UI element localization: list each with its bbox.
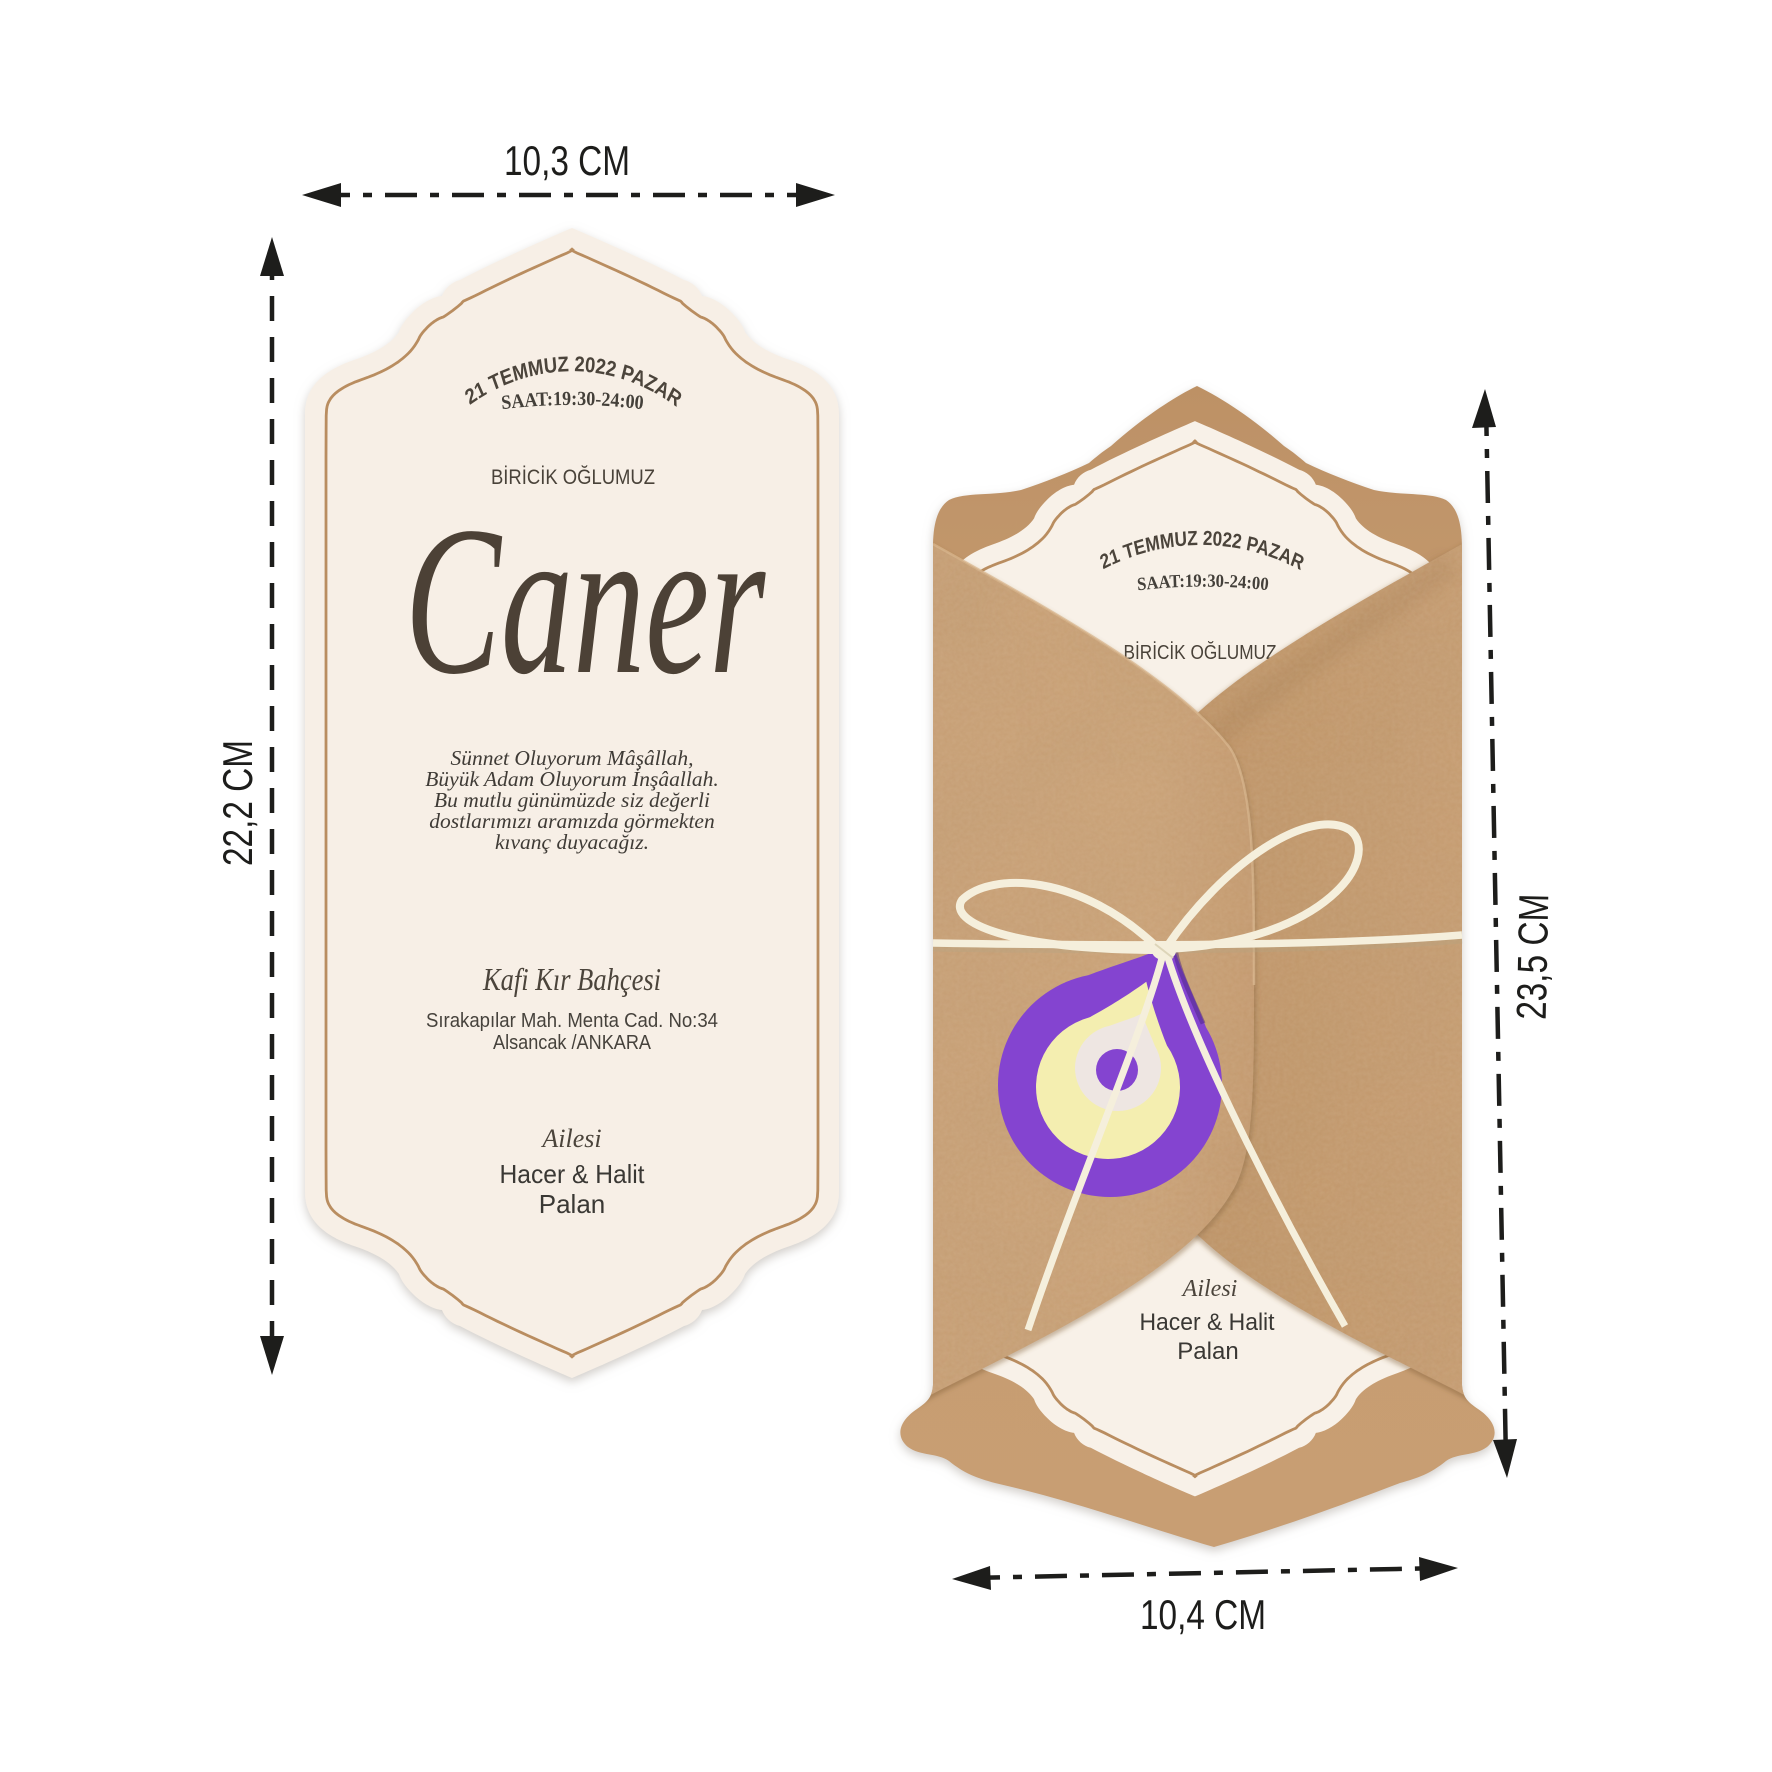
svg-text:Sırakapılar Mah. Menta Cad. No: Sırakapılar Mah. Menta Cad. No:34 — [426, 1010, 718, 1032]
svg-text:Ailesi: Ailesi — [1181, 1276, 1238, 1302]
svg-text:22,2 CM: 22,2 CM — [214, 740, 261, 866]
svg-text:10,4 CM: 10,4 CM — [1140, 1591, 1266, 1638]
svg-text:Palan: Palan — [1177, 1338, 1238, 1365]
svg-text:23,5 CM: 23,5 CM — [1508, 893, 1558, 1020]
svg-text:BİRİCİK OĞLUMUZ: BİRİCİK OĞLUMUZ — [1124, 641, 1277, 664]
svg-text:Alsancak /ANKARA: Alsancak /ANKARA — [493, 1032, 652, 1054]
svg-text:10,3 CM: 10,3 CM — [504, 137, 630, 184]
svg-text:Caner: Caner — [405, 484, 767, 719]
svg-text:Ailesi: Ailesi — [540, 1124, 601, 1153]
svg-text:Palan: Palan — [539, 1189, 606, 1219]
svg-text:Hacer & Halit: Hacer & Halit — [500, 1159, 646, 1189]
svg-text:Hacer & Halit: Hacer & Halit — [1140, 1309, 1275, 1336]
svg-text:kıvanç duyacağız.: kıvanç duyacağız. — [495, 830, 649, 854]
svg-text:Kafi Kır Bahçesi: Kafi Kır Bahçesi — [482, 961, 661, 997]
